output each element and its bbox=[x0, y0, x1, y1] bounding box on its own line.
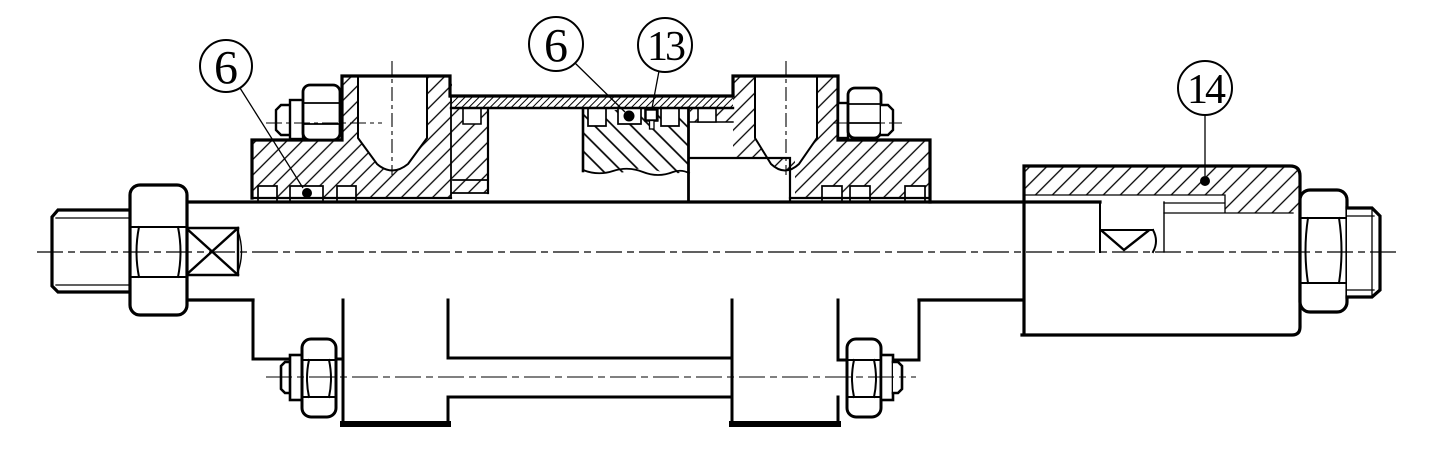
tie-rod-stud-top-right bbox=[881, 105, 893, 135]
groove bbox=[698, 109, 716, 122]
balloon-number: 6 bbox=[544, 20, 568, 73]
section-hatching bbox=[252, 76, 1300, 213]
left-hex-nut bbox=[130, 185, 187, 315]
right-flange bbox=[732, 300, 838, 421]
fasteners bbox=[52, 85, 1380, 417]
left-flange bbox=[343, 300, 448, 421]
groove bbox=[463, 109, 481, 124]
v-seal bbox=[1102, 231, 1148, 250]
external-view-bottom bbox=[253, 300, 919, 424]
drawing-canvas: 661314 bbox=[0, 0, 1435, 450]
balloon-number: 14 bbox=[1187, 67, 1226, 113]
leader-dot bbox=[1200, 176, 1210, 186]
balloon-number: 6 bbox=[214, 42, 238, 95]
o-ring-seal bbox=[624, 111, 635, 122]
tie-rod-nut-top-left bbox=[303, 85, 340, 140]
part13-seal bbox=[646, 110, 658, 121]
groove bbox=[588, 109, 606, 126]
hydraulic-cylinder-section-drawing: 661314 bbox=[0, 0, 1435, 450]
v-seal-box bbox=[1100, 230, 1156, 252]
o-ring-seal bbox=[302, 188, 312, 198]
tie-rod-washer-top-right bbox=[838, 103, 848, 138]
right-gland-hatch bbox=[733, 76, 930, 198]
barrel-wall-hatch bbox=[451, 96, 733, 108]
groove bbox=[661, 109, 679, 126]
tie-rod-washer-top-left bbox=[290, 100, 303, 139]
balloon-number: 13 bbox=[647, 24, 685, 70]
left-thread-stub bbox=[52, 210, 130, 292]
tie-rod-stud-top-left bbox=[276, 105, 290, 135]
part13-seal-stem bbox=[650, 121, 655, 130]
tie-rod-nut-top-right bbox=[848, 88, 881, 138]
right-hex-nut bbox=[1300, 190, 1347, 312]
collar-hatch bbox=[1024, 166, 1300, 213]
